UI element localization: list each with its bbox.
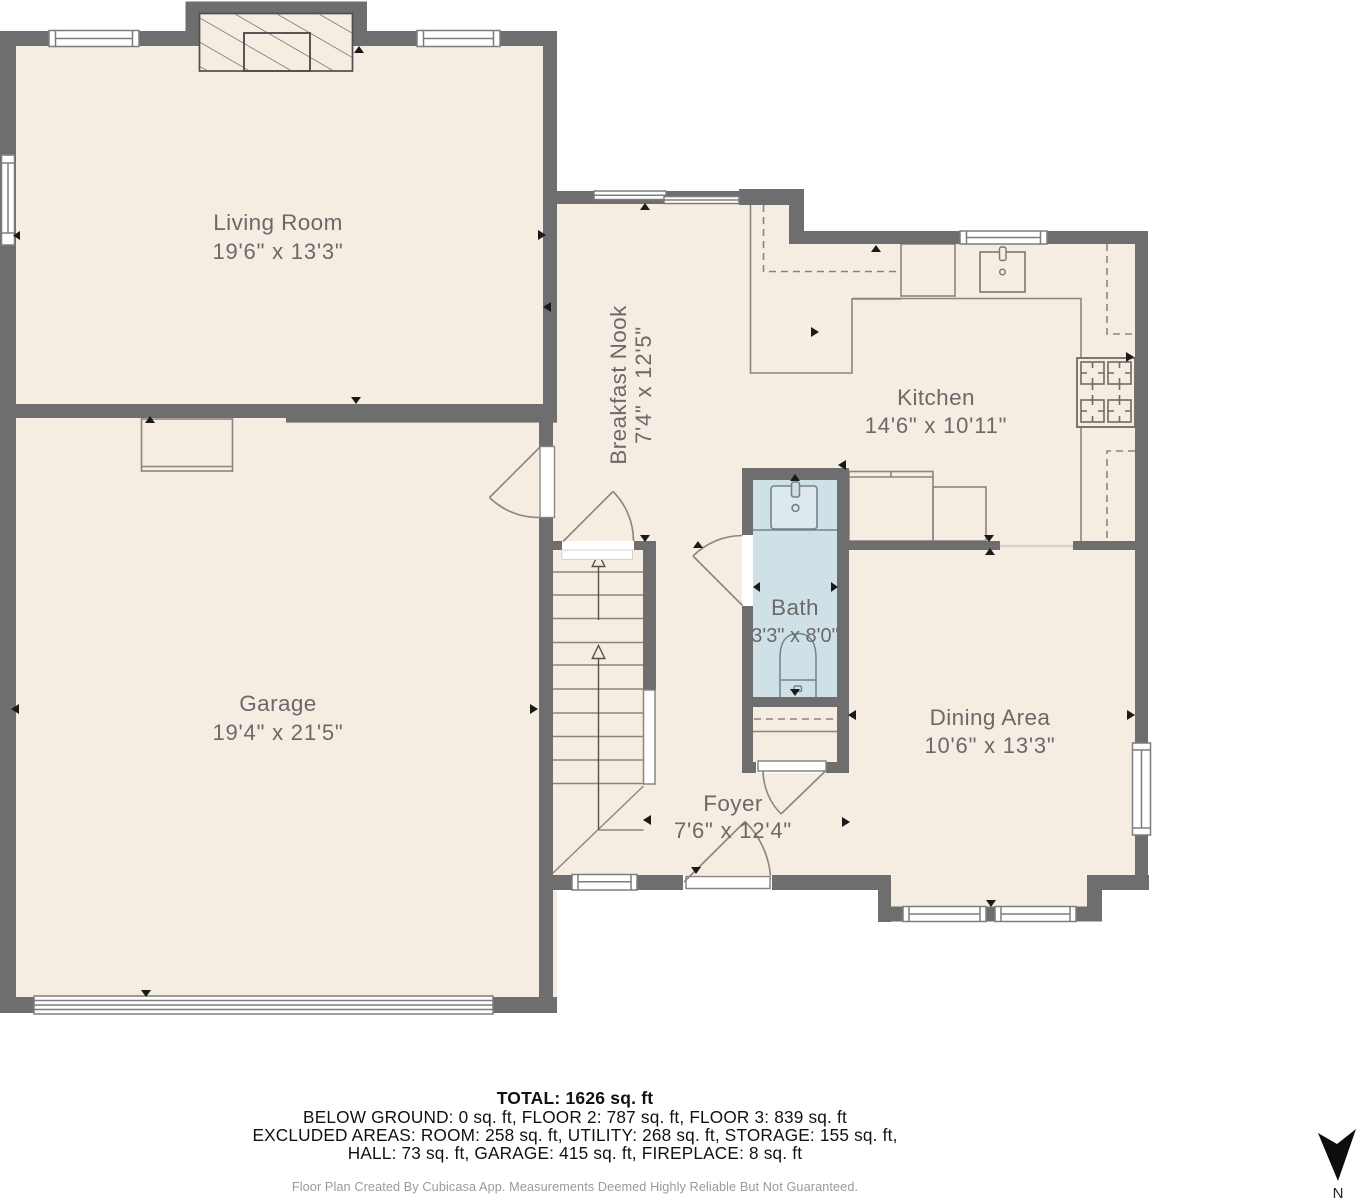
svg-text:Dining Area: Dining Area	[930, 705, 1051, 730]
svg-text:EXCLUDED AREAS: ROOM: 258 sq.: EXCLUDED AREAS: ROOM: 258 sq. ft, UTILIT…	[252, 1125, 897, 1145]
svg-text:Living Room: Living Room	[213, 210, 342, 235]
svg-text:19'6" x 13'3": 19'6" x 13'3"	[212, 239, 343, 264]
svg-text:Bath: Bath	[771, 595, 819, 620]
svg-text:HALL: 73 sq. ft, GARAGE: 415 s: HALL: 73 sq. ft, GARAGE: 415 sq. ft, FIR…	[348, 1143, 802, 1163]
svg-text:14'6" x 10'11": 14'6" x 10'11"	[865, 413, 1007, 438]
svg-text:TOTAL: 1626 sq. ft: TOTAL: 1626 sq. ft	[497, 1088, 654, 1108]
svg-text:7'4" x 12'5": 7'4" x 12'5"	[631, 326, 656, 444]
svg-text:Breakfast Nook: Breakfast Nook	[606, 305, 631, 465]
svg-text:Kitchen: Kitchen	[897, 385, 975, 410]
svg-text:7'6" x 12'4": 7'6" x 12'4"	[674, 818, 792, 843]
svg-text:19'4" x 21'5": 19'4" x 21'5"	[212, 720, 343, 745]
svg-text:Garage: Garage	[239, 691, 316, 716]
svg-text:BELOW GROUND: 0 sq. ft, FLOOR: BELOW GROUND: 0 sq. ft, FLOOR 2: 787 sq.…	[303, 1107, 847, 1127]
svg-text:Floor Plan Created By Cubicasa: Floor Plan Created By Cubicasa App. Meas…	[292, 1180, 858, 1194]
svg-text:Foyer: Foyer	[703, 791, 763, 816]
svg-text:3'3" x 8'0": 3'3" x 8'0"	[751, 625, 838, 647]
svg-text:N: N	[1333, 1185, 1344, 1200]
svg-text:10'6" x 13'3": 10'6" x 13'3"	[924, 733, 1055, 758]
